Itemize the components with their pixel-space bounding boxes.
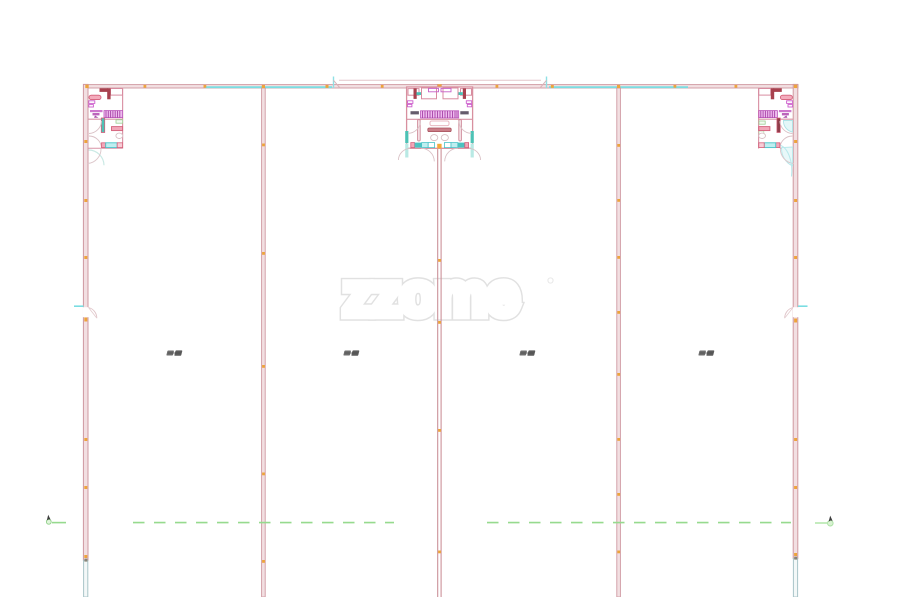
svg-text:zzome: zzome [343,262,518,328]
